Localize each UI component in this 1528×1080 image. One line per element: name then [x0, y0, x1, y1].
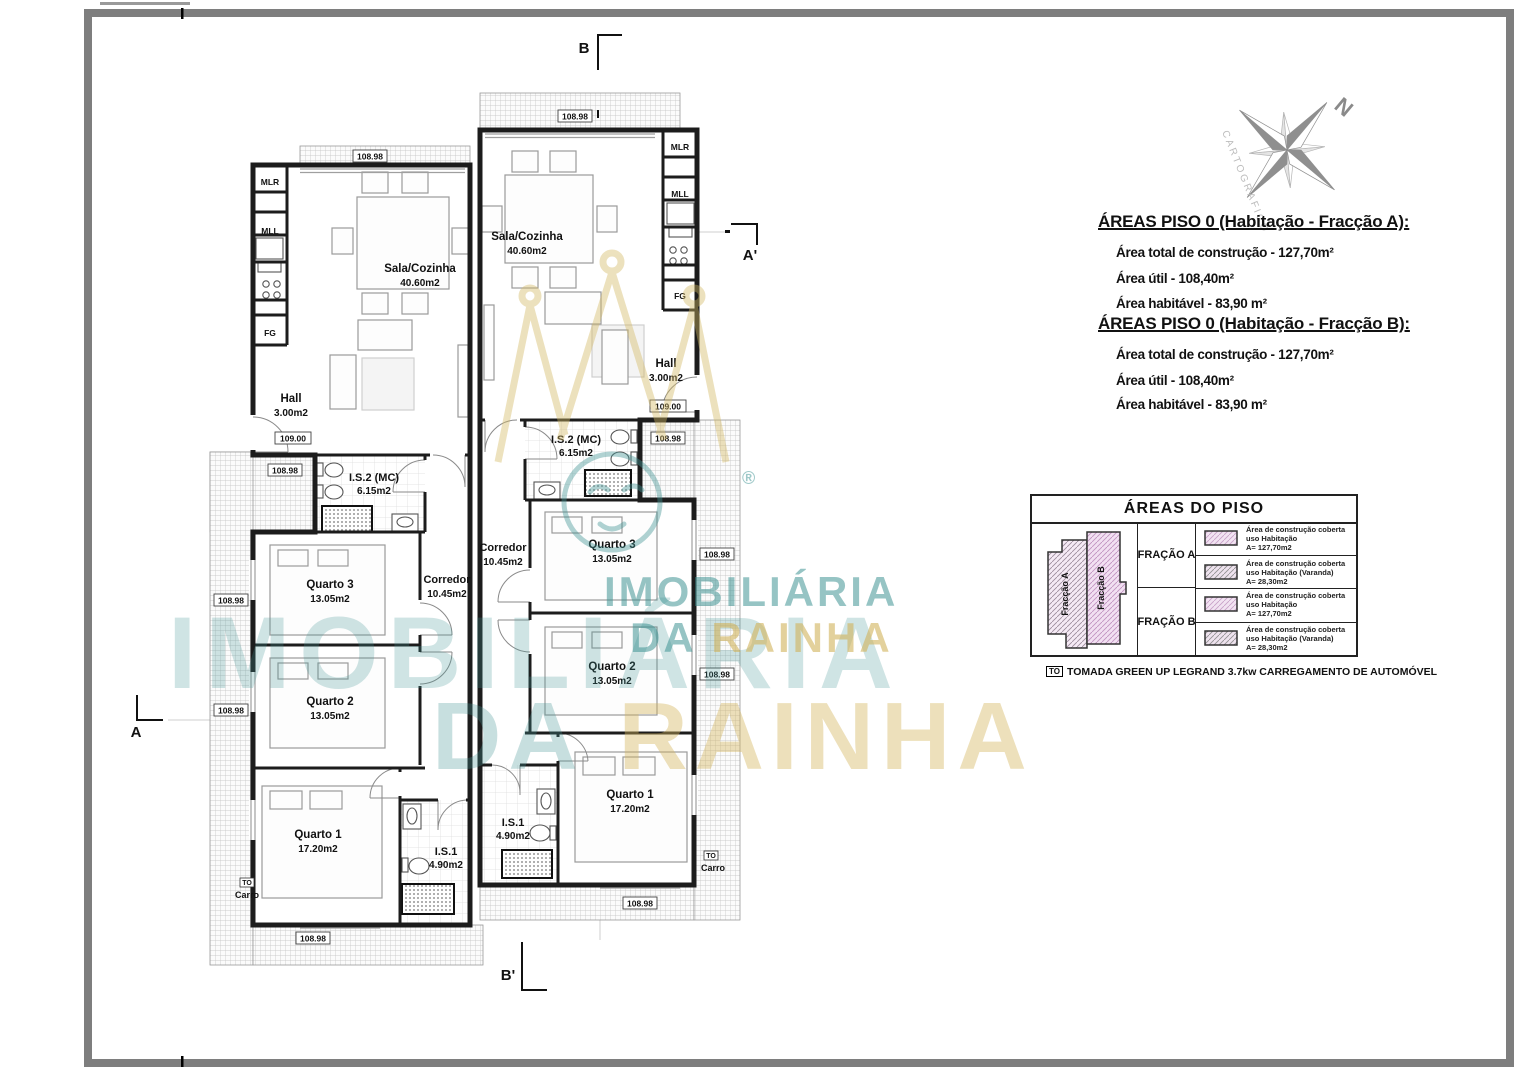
charger-note-text: TOMADA GREEN UP LEGRAND 3.7kw CARREGAMEN… — [1067, 666, 1437, 678]
room-label: Corredor — [423, 574, 471, 586]
room-label: I.S.1 — [435, 846, 458, 858]
area-total-a: Área total de construção - 127,70m² — [1116, 245, 1334, 260]
room-label: I.S.2 (MC) — [349, 472, 399, 484]
dim-label: 108.98 — [218, 706, 244, 716]
room-label: Hall — [280, 393, 301, 405]
room-area: 13.05m2 — [592, 676, 632, 687]
legend-text: A= 127,70m2 — [1246, 543, 1292, 552]
room-area: 10.45m2 — [427, 589, 467, 600]
room-label: Quarto 2 — [588, 661, 635, 673]
legend-text: A= 28,30m2 — [1246, 643, 1288, 652]
section-b: B — [579, 40, 590, 57]
kitchen-label-mll: MLL — [261, 226, 278, 236]
room-label: I.S.1 — [502, 817, 525, 829]
dim-label: 108.98 — [357, 152, 383, 162]
legend-row-b1: Área de construção coberta uso Habitação… — [1196, 588, 1356, 623]
charger-note: TOTOMADA GREEN UP LEGRAND 3.7kw CARREGAM… — [1046, 666, 1437, 678]
areas-title-fraction-b: ÁREAS PISO 0 (Habitação - Fracção B): — [1098, 314, 1410, 334]
legend-text: uso Habitação — [1246, 534, 1297, 543]
area-total-b: Área total de construção - 127,70m² — [1116, 347, 1334, 362]
room-area: 13.05m2 — [592, 554, 632, 565]
dim-label: 108.98 — [272, 466, 298, 476]
room-area: 4.90m2 — [496, 831, 530, 842]
legend-row-b2: Área de construção coberta uso Habitação… — [1196, 622, 1356, 655]
legend-text: Área de construção coberta — [1246, 525, 1345, 534]
level-label: 109.00 — [280, 434, 306, 444]
compass-north-letter: N — [1330, 92, 1358, 121]
room-label: Quarto 2 — [306, 696, 353, 708]
kitchen-label-mlr: MLR — [671, 142, 689, 152]
swatch-varanda-a — [1204, 564, 1238, 580]
section-a: A — [131, 724, 142, 741]
swatch-varanda-b — [1204, 630, 1238, 646]
mini-label-fraccao-a: Fracção A — [1060, 572, 1070, 616]
table-title: ÁREAS DO PISO — [1032, 496, 1356, 524]
room-area: 17.20m2 — [610, 804, 650, 815]
room-label: Sala/Cozinha — [384, 263, 456, 275]
legend-text: Área de construção coberta — [1246, 559, 1345, 568]
section-a-prime: A' — [743, 247, 757, 264]
swatch-habitacao-a — [1204, 530, 1238, 546]
legend-text: Área de construção coberta — [1246, 625, 1345, 634]
to-carro: Carro — [235, 890, 260, 900]
room-label: Quarto 3 — [306, 579, 353, 591]
dim-label: 108.98 — [562, 112, 588, 122]
room-label: Quarto 1 — [606, 789, 654, 801]
area-util-b: Área útil - 108,40m² — [1116, 373, 1234, 388]
fraction-b-label-cell: FRAÇÃO B — [1138, 588, 1196, 655]
area-habitavel-a: Área habitável - 83,90 m² — [1116, 296, 1267, 311]
room-area: 6.15m2 — [357, 486, 391, 497]
fraction-a-label-cell: FRAÇÃO A — [1138, 522, 1196, 588]
room-area: 4.90m2 — [429, 860, 463, 871]
room-label: Quarto 1 — [294, 829, 342, 841]
area-util-a: Área útil - 108,40m² — [1116, 271, 1234, 286]
dim-label: 108.98 — [704, 550, 730, 560]
room-area: 17.20m2 — [298, 844, 338, 855]
dim-label: 108.98 — [218, 596, 244, 606]
legend-row-a2: Área de construção coberta uso Habitação… — [1196, 556, 1356, 589]
section-b-prime: B' — [501, 967, 515, 984]
mini-plan-diagram: Fracção A Fracção B — [1032, 522, 1138, 655]
dim-label: 108.98 — [300, 934, 326, 944]
legend-text: uso Habitação — [1246, 600, 1297, 609]
dim-label: 108.98 — [627, 899, 653, 909]
room-area: 13.05m2 — [310, 594, 350, 605]
room-label: Sala/Cozinha — [491, 231, 563, 243]
room-area: 13.05m2 — [310, 711, 350, 722]
to-note-tag: TO — [1046, 666, 1063, 677]
legend-row-a1: Área de construção coberta uso Habitação… — [1196, 522, 1356, 556]
legend-text: uso Habitação (Varanda) — [1246, 634, 1334, 643]
mini-slab-b — [1087, 532, 1126, 644]
room-area: 40.60m2 — [507, 246, 547, 257]
to-tag: TO — [242, 880, 252, 887]
area-habitavel-b: Área habitável - 83,90 m² — [1116, 397, 1267, 412]
legend-text: Área de construção coberta — [1246, 591, 1345, 600]
room-label: Corredor — [479, 542, 527, 554]
mini-label-fraccao-b: Fracção B — [1096, 566, 1106, 610]
kitchen-label-mlr: MLR — [261, 177, 279, 187]
room-area: 6.15m2 — [559, 448, 593, 459]
legend-text: A= 28,30m2 — [1246, 577, 1288, 586]
areas-do-piso-table: ÁREAS DO PISO Fracção A Fracção B FRAÇÃO… — [1030, 494, 1358, 657]
mini-plan-cell: Fracção A Fracção B — [1032, 522, 1138, 655]
room-area: 10.45m2 — [483, 557, 523, 568]
swatch-habitacao-b — [1204, 596, 1238, 612]
dim-label: 108.98 — [704, 670, 730, 680]
kitchen-label-mll: MLL — [671, 189, 688, 199]
room-area: 3.00m2 — [274, 408, 308, 419]
legend-text: A= 127,70m2 — [1246, 609, 1292, 618]
compass-rose: N CARTOGRAFICO — [1200, 47, 1388, 237]
room-area: 40.60m2 — [400, 278, 440, 289]
to-carro: Carro — [701, 863, 726, 873]
areas-title-fraction-a: ÁREAS PISO 0 (Habitação - Fracção A): — [1098, 212, 1409, 232]
kitchen-label-fg: FG — [264, 328, 276, 338]
to-tag: TO — [706, 853, 716, 860]
legend-text: uso Habitação (Varanda) — [1246, 568, 1334, 577]
